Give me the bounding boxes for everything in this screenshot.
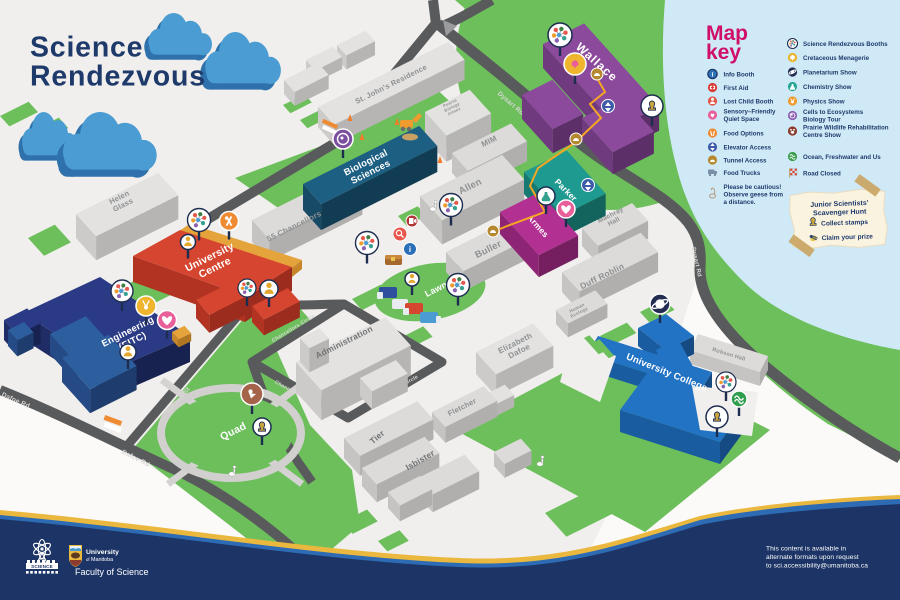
svg-text:Lost Child Booth: Lost Child Booth <box>724 98 774 105</box>
svg-text:Sensory–Friendly: Sensory–Friendly <box>724 109 776 116</box>
svg-text:Biology Tour: Biology Tour <box>803 117 841 124</box>
svg-text:i: i <box>712 72 714 79</box>
svg-text:Planetarium Show: Planetarium Show <box>803 69 857 76</box>
svg-text:University: University <box>86 549 119 556</box>
svg-text:key: key <box>706 41 741 64</box>
svg-text:a distance.: a distance. <box>724 199 756 206</box>
svg-text:Prairie Wildlife Rehabilitatio: Prairie Wildlife Rehabilitation <box>803 125 889 132</box>
svg-text:Cells to Ecosystems: Cells to Ecosystems <box>803 109 864 116</box>
svg-text:i: i <box>409 245 411 254</box>
svg-text:First Aid: First Aid <box>724 85 749 92</box>
svg-text:Physics Show: Physics Show <box>803 98 845 105</box>
svg-text:Tunnel Access: Tunnel Access <box>724 157 768 164</box>
svg-text:Road Closed: Road Closed <box>803 170 841 177</box>
svg-text:to sci.accessibility@umanitoba: to sci.accessibility@umanitoba.ca <box>766 563 868 570</box>
svg-text:Food Options: Food Options <box>724 130 765 137</box>
svg-text:of Manitoba: of Manitoba <box>86 557 113 563</box>
svg-text:Cretaceous Menagerie: Cretaceous Menagerie <box>803 55 870 62</box>
svg-text:Chemistry Show: Chemistry Show <box>803 84 852 91</box>
svg-text:Please be cautious!: Please be cautious! <box>724 184 782 191</box>
svg-text:Food Trucks: Food Trucks <box>724 170 761 177</box>
svg-text:Science Rendezvous Booths: Science Rendezvous Booths <box>803 41 888 48</box>
svg-text:Ocean, Freshwater and Us: Ocean, Freshwater and Us <box>803 154 881 161</box>
svg-text:Faculty of Science: Faculty of Science <box>75 567 149 577</box>
svg-text:Rendezvous: Rendezvous <box>30 61 206 93</box>
svg-text:This content is available in: This content is available in <box>766 546 846 553</box>
svg-text:Observe geese from: Observe geese from <box>724 191 784 198</box>
svg-text:Centre Show: Centre Show <box>803 132 841 139</box>
svg-text:alternate formats upon request: alternate formats upon request <box>766 554 859 561</box>
svg-text:Science: Science <box>30 32 143 64</box>
svg-text:Elevator Access: Elevator Access <box>724 144 772 151</box>
svg-text:SCIENCE: SCIENCE <box>31 564 53 569</box>
svg-text:Quiet Space: Quiet Space <box>724 116 760 123</box>
svg-text:Info Booth: Info Booth <box>724 71 755 78</box>
